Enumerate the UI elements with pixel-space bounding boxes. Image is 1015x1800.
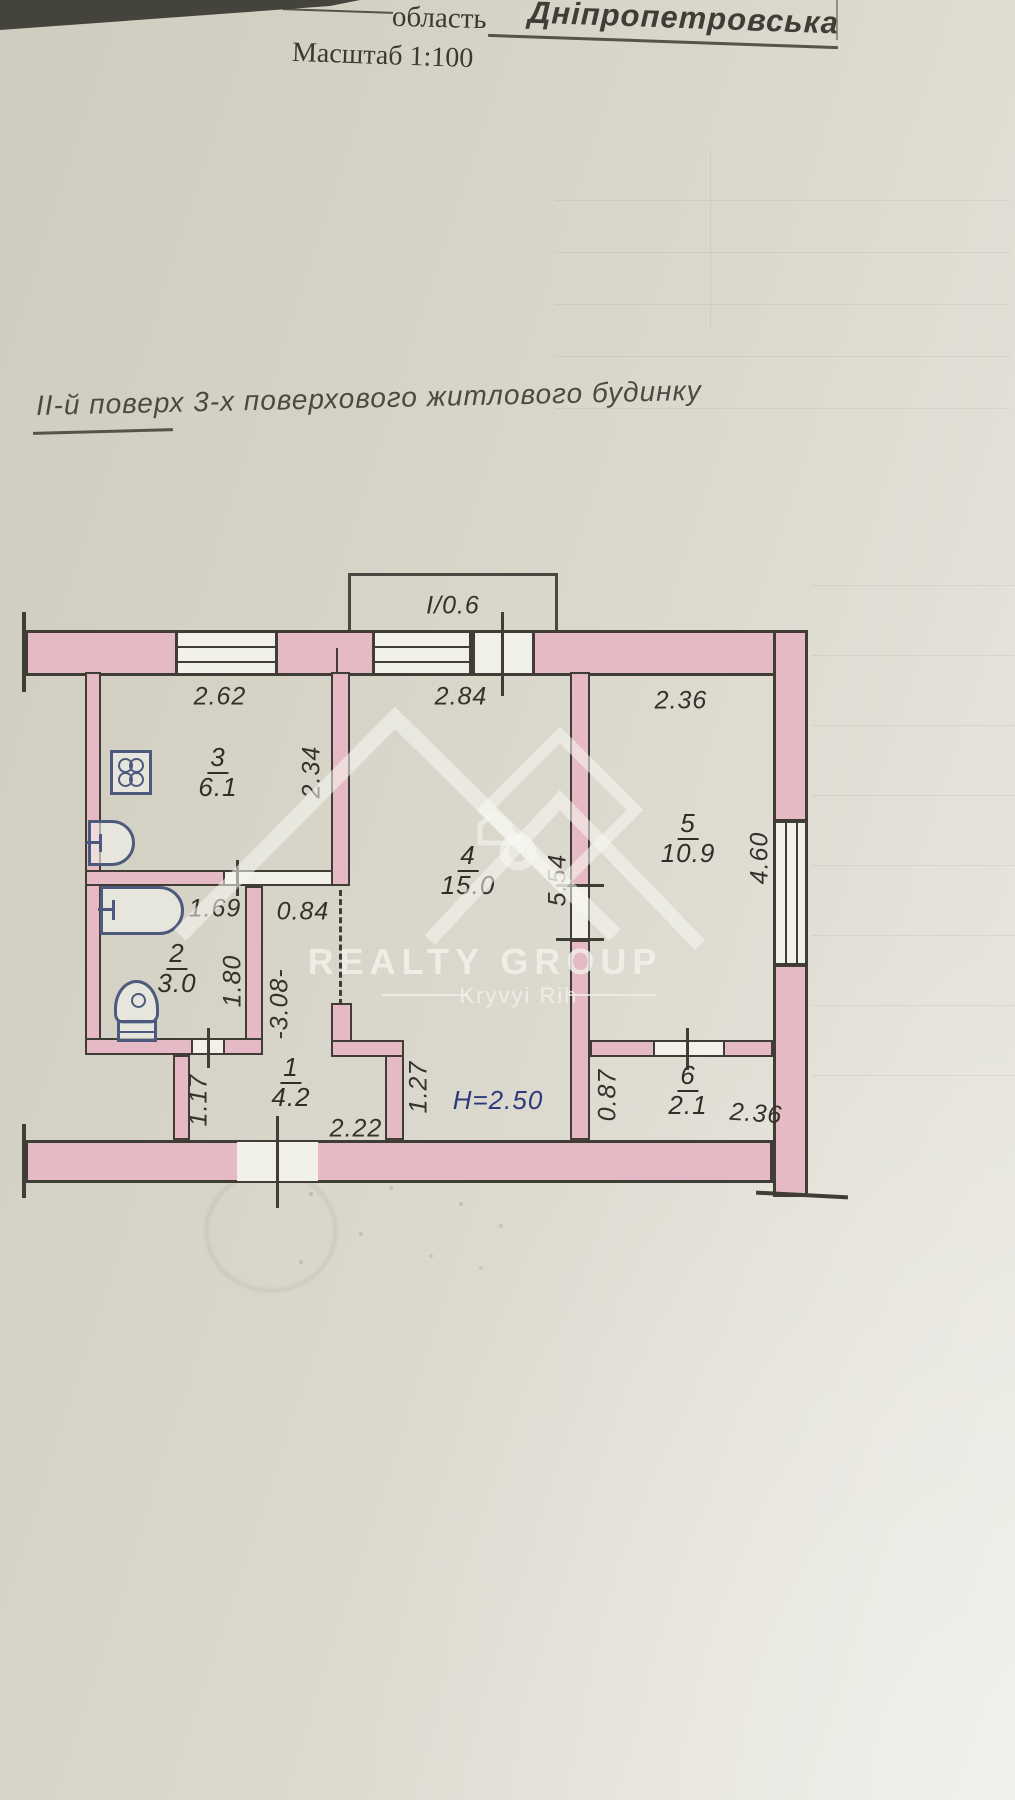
stamp-speckles bbox=[270, 1185, 272, 1187]
title-underline bbox=[33, 428, 173, 435]
dim-label: 2.36 bbox=[729, 1100, 783, 1129]
dim-label: 1.17 bbox=[187, 1074, 212, 1127]
room-label-bedroom: 5 10.9 bbox=[661, 810, 716, 867]
dim-label: 4.60 bbox=[748, 832, 773, 885]
room-label-living: 4 15.0 bbox=[441, 842, 496, 899]
bleed-line bbox=[812, 585, 1015, 586]
watermark-brand: REALTY GROUP bbox=[308, 944, 663, 980]
room-label-kitchen: 3 6.1 bbox=[198, 744, 237, 801]
toilet-tank-icon bbox=[117, 1020, 157, 1042]
window-living bbox=[372, 630, 472, 676]
dim-label: 2.22 bbox=[330, 1117, 383, 1142]
wall-kitchen-hall-divider bbox=[331, 672, 350, 886]
bleed-line bbox=[812, 655, 1015, 656]
toilet-icon bbox=[114, 980, 159, 1024]
wall-room5-room6 bbox=[723, 1040, 773, 1057]
scanned-floor-plan-page: область Дніпропетровська Масштаб 1:100 І… bbox=[0, 0, 1015, 1800]
faded-stamp-mark bbox=[205, 1170, 337, 1292]
wall-step bbox=[385, 1055, 404, 1140]
dim-label: 2.84 bbox=[435, 685, 488, 710]
bleed-line bbox=[555, 304, 1010, 305]
door-opening-kitchen bbox=[225, 870, 331, 886]
door-opening-room4 bbox=[570, 887, 590, 940]
watermark-rule bbox=[568, 994, 656, 996]
balcony-label: І/0.6 bbox=[426, 594, 480, 619]
bleed-line bbox=[555, 252, 1010, 253]
wall-step bbox=[331, 1003, 352, 1043]
open-passage-dashed-line bbox=[339, 890, 342, 1005]
dim-label: -3.08- bbox=[268, 968, 293, 1039]
dimension-tick bbox=[276, 1116, 279, 1208]
watermark-city: Kryvyi Rih bbox=[459, 985, 578, 1007]
dim-label: 0.84 bbox=[277, 900, 330, 925]
wall-end-cap bbox=[22, 612, 26, 692]
wall-room5-room6 bbox=[590, 1040, 655, 1057]
bleed-line bbox=[710, 150, 711, 330]
dimension-tick bbox=[207, 1028, 210, 1068]
dimension-tick bbox=[501, 612, 504, 696]
bleed-line bbox=[555, 200, 1010, 201]
dim-label: 1.80 bbox=[221, 955, 246, 1008]
wall-right-lower bbox=[773, 964, 808, 1197]
ceiling-height-label: Н=2.50 bbox=[453, 1087, 544, 1113]
wall-room4-room5-divider bbox=[570, 672, 590, 887]
wall-bath-right bbox=[245, 886, 263, 1055]
room-label-lobby: 6 2.1 bbox=[668, 1062, 707, 1119]
bleed-line bbox=[812, 865, 1015, 866]
dim-label: 2.62 bbox=[194, 685, 247, 710]
region-label: область bbox=[392, 1, 487, 36]
sink-tap-icon bbox=[86, 841, 100, 844]
photo-edge-shadow bbox=[0, 0, 360, 34]
wall-bath-bottom bbox=[223, 1038, 263, 1055]
dim-label: 5.54 bbox=[546, 854, 571, 907]
region-value: Дніпропетровська bbox=[527, 0, 839, 41]
dim-label: 0.87 bbox=[596, 1069, 621, 1122]
bleed-line bbox=[812, 935, 1015, 936]
bathtub-tap-icon bbox=[98, 908, 114, 911]
bleed-line bbox=[812, 1005, 1015, 1006]
dim-label: 1.69 bbox=[189, 897, 242, 922]
dimension-tick bbox=[236, 860, 239, 896]
bleed-line bbox=[555, 356, 1010, 357]
dim-label: 2.36 bbox=[655, 689, 708, 714]
wall-room4-room5-divider bbox=[570, 940, 590, 1140]
bleed-line bbox=[812, 1075, 1015, 1076]
header-blank-line bbox=[283, 8, 393, 14]
bleed-line bbox=[555, 408, 1010, 409]
window-kitchen bbox=[175, 630, 278, 676]
scale-text: Масштаб 1:100 bbox=[291, 37, 473, 75]
page-fold-line bbox=[836, 0, 838, 40]
plan-title: ІІ-й поверх 3-х поверхового житлового бу… bbox=[36, 375, 702, 422]
wall-right-upper bbox=[773, 630, 808, 822]
bleed-line bbox=[812, 725, 1015, 726]
bleed-line bbox=[812, 795, 1015, 796]
dim-label: 2.34 bbox=[300, 746, 325, 799]
watermark-rule bbox=[382, 994, 468, 996]
wall-bottom bbox=[25, 1140, 773, 1183]
room-label-hall: 1 4.2 bbox=[271, 1054, 310, 1111]
stove-icon bbox=[110, 750, 152, 795]
room-label-bath: 2 3.0 bbox=[157, 940, 196, 997]
window-bedroom bbox=[773, 820, 808, 966]
wall-end-cap bbox=[22, 1124, 26, 1198]
wall-kitchen-bottom bbox=[85, 870, 225, 886]
dim-label: 1.27 bbox=[407, 1061, 432, 1114]
door-opening-room6 bbox=[655, 1040, 723, 1057]
